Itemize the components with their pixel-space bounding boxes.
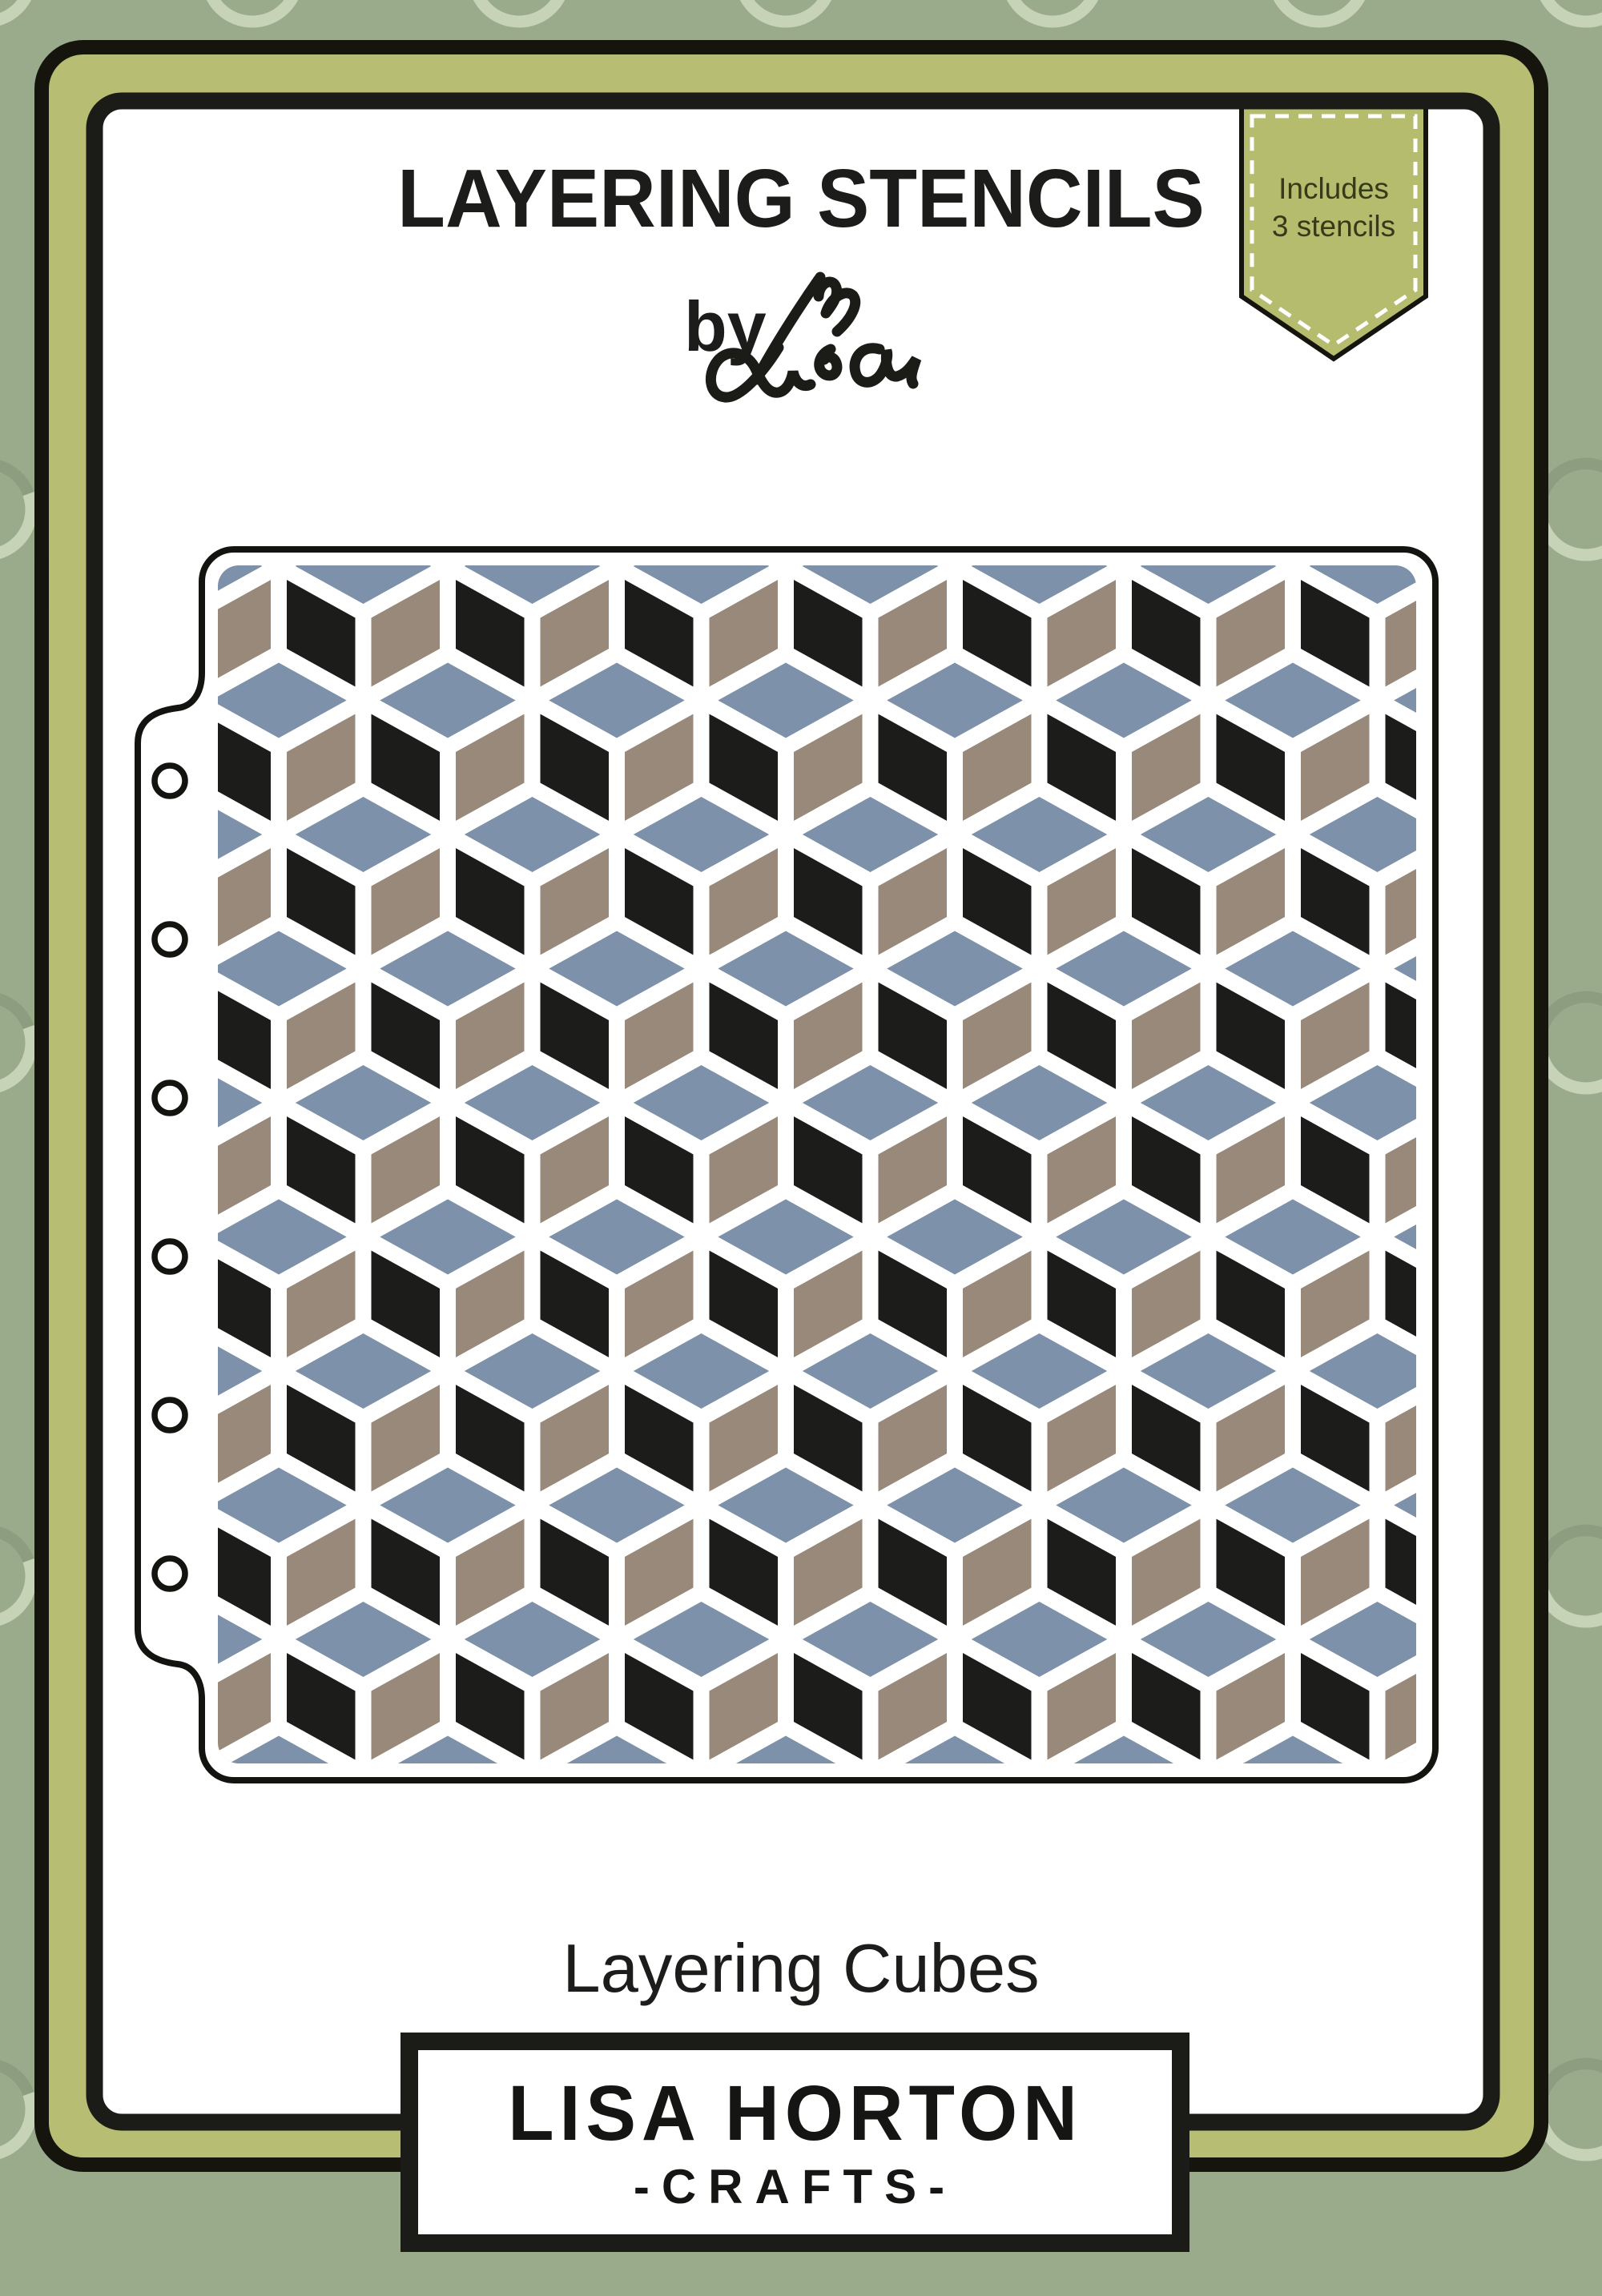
brand-name: LISA HORTON <box>508 2074 1083 2152</box>
badge-line2: 3 stencils <box>1242 207 1426 245</box>
signature-stroke <box>710 348 811 397</box>
product-packshot: LAYERING STENCILS by Includes 3 stencils… <box>0 0 1602 2296</box>
badge-line1: Includes <box>1242 170 1426 207</box>
product-name: Layering Cubes <box>0 1932 1602 2007</box>
signature-stroke <box>819 349 837 376</box>
signature-heart-icon <box>819 282 855 332</box>
brand-logo-box: LISA HORTON -CRAFTS- <box>400 2033 1189 2252</box>
tumbling-cubes-pattern <box>0 520 1602 1908</box>
lisa-signature <box>698 269 947 437</box>
brand-tagline: -CRAFTS- <box>634 2163 956 2211</box>
stencil-sheet <box>0 520 1602 1908</box>
badge-text: Includes 3 stencils <box>1242 170 1426 245</box>
signature-stroke <box>855 348 916 384</box>
